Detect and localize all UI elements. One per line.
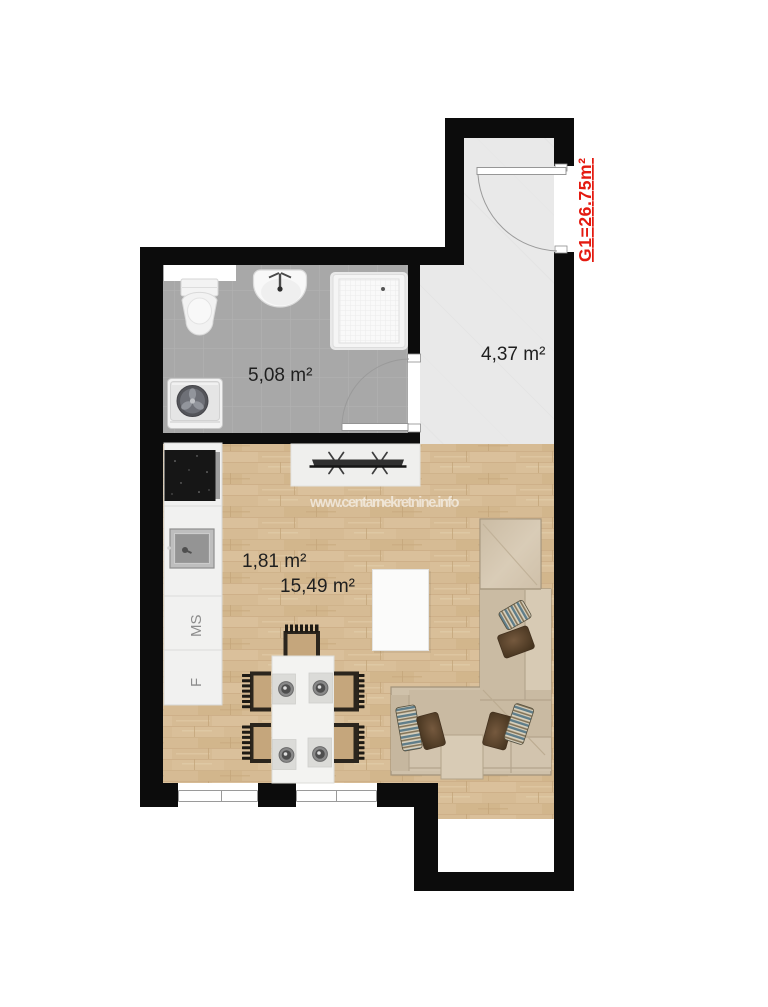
svg-text:F: F <box>188 678 205 687</box>
svg-text:5,08 m²: 5,08 m² <box>248 365 312 386</box>
svg-text:4,37 m²: 4,37 m² <box>481 344 545 365</box>
svg-text:MS: MS <box>188 615 205 638</box>
svg-text:www.centarnekretnine.info: www.centarnekretnine.info <box>309 495 460 511</box>
svg-text:G1=26.75m²: G1=26.75m² <box>575 158 595 262</box>
svg-text:15,49 m²: 15,49 m² <box>280 576 355 597</box>
svg-text:1,81 m²: 1,81 m² <box>242 551 306 572</box>
